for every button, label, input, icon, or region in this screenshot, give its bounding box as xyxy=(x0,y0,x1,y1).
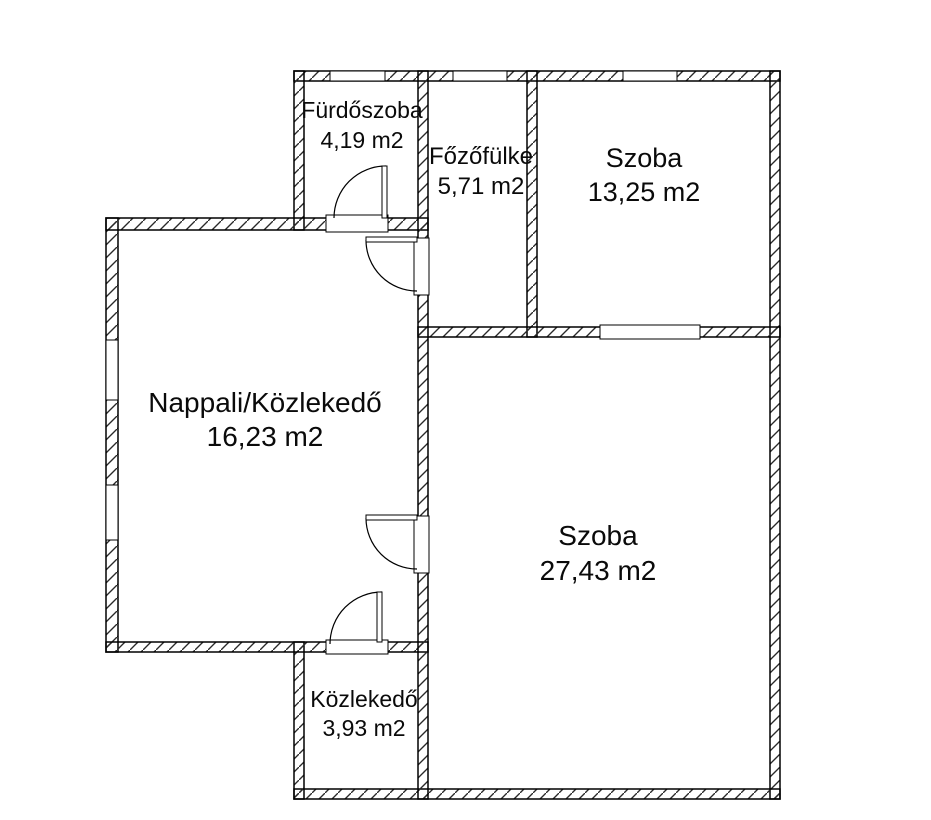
door-kitchenette-swing-arc xyxy=(366,240,417,291)
opening-bigroom-door xyxy=(414,516,429,573)
opening-room-passage xyxy=(600,325,700,339)
door-hallway-swing-arc xyxy=(330,592,382,644)
window-small-room xyxy=(623,71,677,81)
door-bathroom-leaf xyxy=(382,166,387,218)
door-hallway-leaf xyxy=(377,592,382,642)
door-kitchenette xyxy=(366,237,417,291)
opening-bathroom-door xyxy=(326,215,388,232)
wall-hallway-left-exterior xyxy=(294,642,304,799)
door-openings xyxy=(326,215,700,654)
windows xyxy=(106,71,677,540)
window-livingroom-upper xyxy=(106,340,118,400)
door-big-room xyxy=(366,515,417,569)
door-big-room-swing-arc xyxy=(366,518,417,569)
wall-bigroom-top xyxy=(418,327,780,337)
wall-bottom-exterior xyxy=(294,789,780,799)
wall-kitchenette-right xyxy=(527,71,537,337)
wall-left-exterior xyxy=(106,218,118,652)
door-bathroom-swing-arc xyxy=(334,166,386,218)
wall-bathroom-left-exterior xyxy=(294,71,304,230)
floor-plan-drawing xyxy=(0,0,931,820)
floor-plan-page: Fürdőszoba 4,19 m2 Főzőfülke 5,71 m2 Szo… xyxy=(0,0,931,820)
window-kitchenette xyxy=(453,71,507,81)
window-livingroom-lower xyxy=(106,485,118,540)
opening-kitchenette-door xyxy=(414,238,429,295)
door-bathroom xyxy=(334,166,387,218)
walls xyxy=(106,71,780,799)
door-kitchenette-leaf xyxy=(366,237,417,242)
door-hallway xyxy=(330,592,382,644)
wall-center-vertical xyxy=(418,71,428,799)
window-bathroom xyxy=(330,71,385,81)
wall-right-exterior xyxy=(770,71,780,799)
door-big-room-leaf xyxy=(366,515,417,520)
